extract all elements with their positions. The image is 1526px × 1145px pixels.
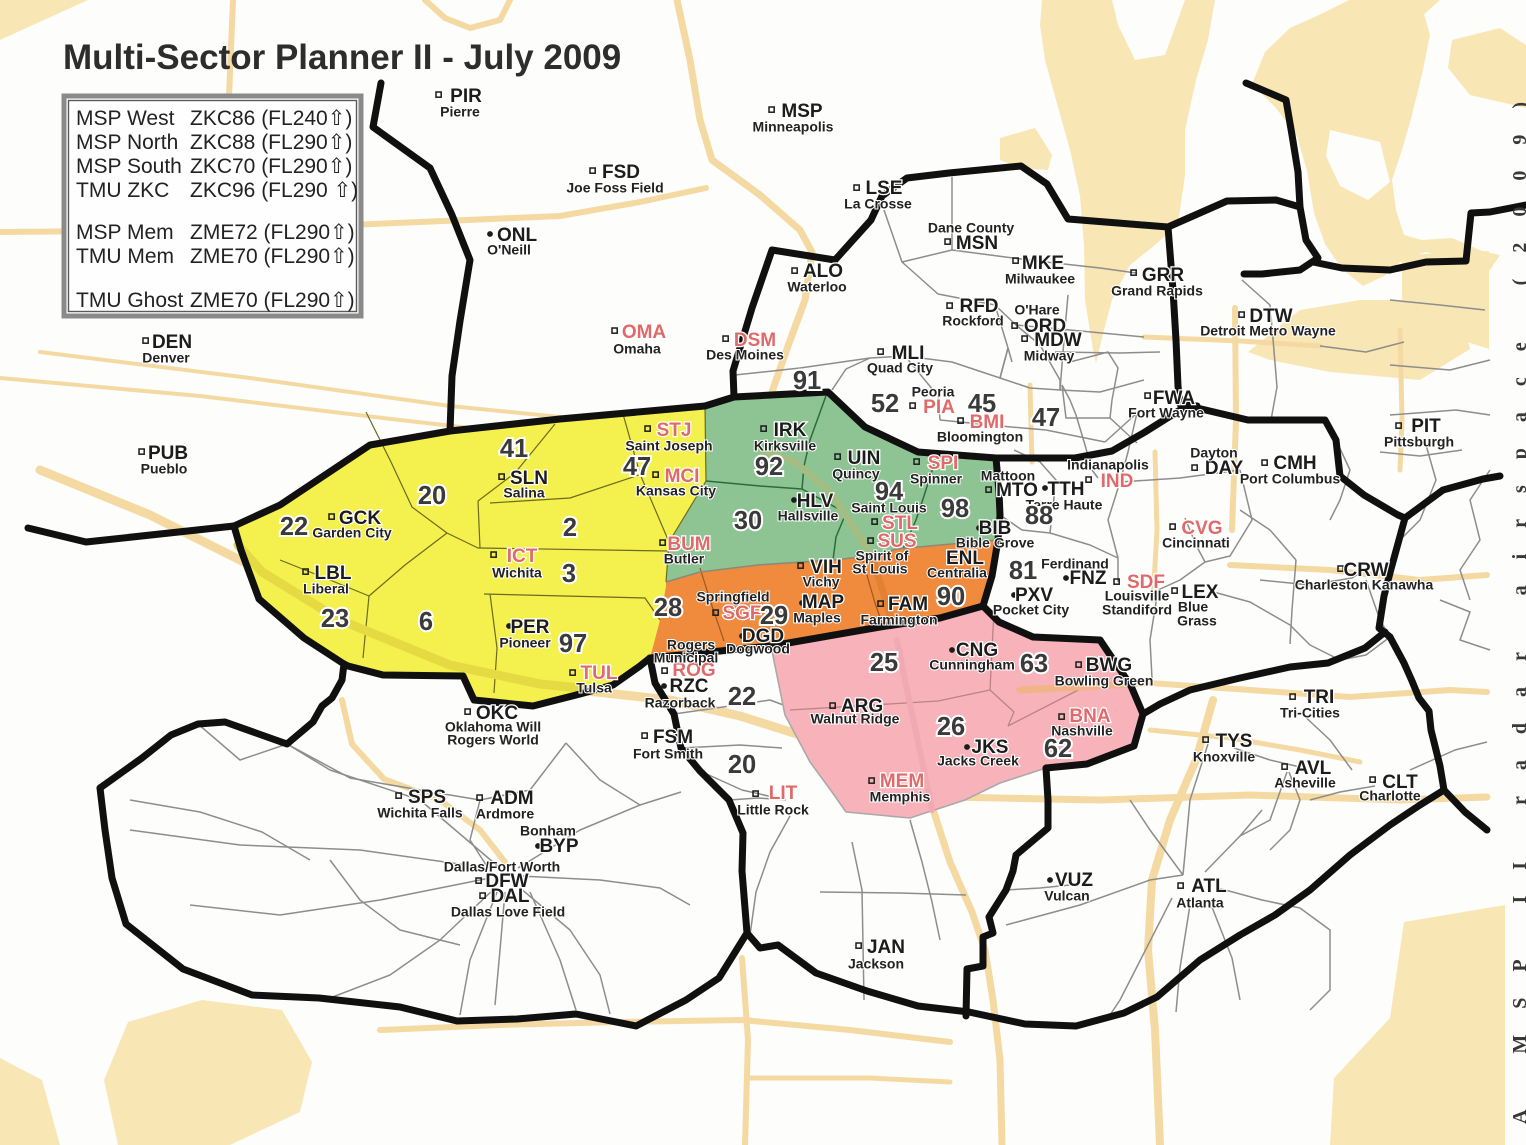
svg-text:Garden City: Garden City xyxy=(312,525,392,541)
svg-text:Saint Joseph: Saint Joseph xyxy=(625,438,712,454)
svg-text:88: 88 xyxy=(1025,502,1053,530)
svg-text:Farmington: Farmington xyxy=(861,612,938,628)
svg-text:Fort Smith: Fort Smith xyxy=(633,746,703,762)
svg-text:20: 20 xyxy=(418,482,446,510)
svg-text:Bowling Green: Bowling Green xyxy=(1055,673,1154,689)
svg-text:IND: IND xyxy=(1101,471,1134,492)
svg-text:Tri-Cities: Tri-Cities xyxy=(1280,705,1340,721)
svg-text:Grand Rapids: Grand Rapids xyxy=(1111,283,1203,299)
svg-text:ZKC96 (FL290 ⇧): ZKC96 (FL290 ⇧) xyxy=(190,179,358,202)
svg-text:Des Moines: Des Moines xyxy=(706,347,784,363)
svg-text:97: 97 xyxy=(559,630,587,658)
svg-text:Bible Grove: Bible Grove xyxy=(956,535,1035,551)
svg-text:Springfield: Springfield xyxy=(696,589,769,605)
svg-text:Butler: Butler xyxy=(664,551,705,567)
svg-text:Cunningham: Cunningham xyxy=(929,657,1015,673)
svg-text:BYP: BYP xyxy=(539,836,578,857)
svg-text:Kirksville: Kirksville xyxy=(754,438,816,454)
svg-text:91: 91 xyxy=(793,367,821,395)
svg-text:Wichita Falls: Wichita Falls xyxy=(377,805,463,821)
svg-text:Vichy: Vichy xyxy=(802,574,839,590)
svg-text:26: 26 xyxy=(937,713,965,741)
svg-text:Municipal: Municipal xyxy=(654,650,719,666)
svg-text:O'Neill: O'Neill xyxy=(487,242,531,258)
svg-text:Maples: Maples xyxy=(793,610,841,626)
svg-text:MSP North: MSP North xyxy=(76,131,178,154)
svg-text:62: 62 xyxy=(1044,735,1072,763)
svg-text:Razorback: Razorback xyxy=(645,695,716,711)
svg-text:Salina: Salina xyxy=(503,485,544,501)
svg-text:Tulsa: Tulsa xyxy=(576,680,612,696)
svg-text:Atlanta: Atlanta xyxy=(1176,895,1224,911)
svg-text:Fort Wayne: Fort Wayne xyxy=(1128,405,1204,421)
svg-text:90: 90 xyxy=(937,583,965,611)
svg-text:Pocket City: Pocket City xyxy=(993,602,1069,618)
svg-text:TMU Mem: TMU Mem xyxy=(76,245,174,268)
svg-text:Cincinnati: Cincinnati xyxy=(1162,535,1230,551)
svg-text:DAY: DAY xyxy=(1205,458,1244,479)
svg-text:Liberal: Liberal xyxy=(303,581,349,597)
svg-text:Rogers World: Rogers World xyxy=(447,732,539,748)
svg-text:Pittsburgh: Pittsburgh xyxy=(1384,434,1454,450)
svg-text:Ardmore: Ardmore xyxy=(476,806,535,822)
svg-text:MSP West: MSP West xyxy=(76,107,175,130)
svg-text:20: 20 xyxy=(728,751,756,779)
svg-text:MSP South: MSP South xyxy=(76,155,182,178)
svg-text:Bloomington: Bloomington xyxy=(937,429,1023,445)
svg-text:98: 98 xyxy=(941,495,969,523)
svg-text:St Louis: St Louis xyxy=(852,561,907,577)
svg-text:22: 22 xyxy=(280,513,308,541)
svg-text:ZKC88 (FL290⇧): ZKC88 (FL290⇧) xyxy=(190,131,352,154)
svg-text:ZME70 (FL290⇧): ZME70 (FL290⇧) xyxy=(190,245,355,268)
svg-text:Ferdinand: Ferdinand xyxy=(1041,556,1109,572)
svg-text:Omaha: Omaha xyxy=(613,341,661,357)
svg-text:ZME70 (FL290⇧): ZME70 (FL290⇧) xyxy=(190,289,355,312)
svg-text:25: 25 xyxy=(870,649,898,677)
svg-text:Indianapolis: Indianapolis xyxy=(1067,457,1149,473)
svg-text:Asheville: Asheville xyxy=(1274,775,1336,791)
svg-text:Denver: Denver xyxy=(142,350,190,366)
svg-text:Detroit Metro Wayne: Detroit Metro Wayne xyxy=(1200,323,1336,339)
svg-text:Standiford: Standiford xyxy=(1102,602,1172,618)
svg-text:52: 52 xyxy=(871,390,899,418)
svg-text:Little Rock: Little Rock xyxy=(737,802,809,818)
svg-text:TMU ZKC: TMU ZKC xyxy=(76,179,169,202)
svg-text:Waterloo: Waterloo xyxy=(787,279,846,295)
svg-text:Midway: Midway xyxy=(1024,348,1075,364)
svg-text:Milwaukee: Milwaukee xyxy=(1005,271,1075,287)
svg-text:Dogwood: Dogwood xyxy=(726,641,790,657)
svg-text:30: 30 xyxy=(734,507,762,535)
svg-text:Charleston Kanawha: Charleston Kanawha xyxy=(1295,577,1434,593)
svg-text:Quincy: Quincy xyxy=(832,466,880,482)
svg-text:Dayton: Dayton xyxy=(1190,445,1237,461)
svg-text:Peoria: Peoria xyxy=(912,384,955,400)
svg-text:Jackson: Jackson xyxy=(848,956,904,972)
svg-text:47: 47 xyxy=(623,453,651,481)
svg-text:SGF: SGF xyxy=(722,603,761,624)
svg-text:Multi-Sector Planner II - July: Multi-Sector Planner II - July 2009 xyxy=(63,38,621,77)
svg-text:Wichita: Wichita xyxy=(492,565,542,581)
svg-text:Rockford: Rockford xyxy=(942,313,1003,329)
svg-text:Kansas City: Kansas City xyxy=(636,483,716,499)
svg-text:Memphis: Memphis xyxy=(870,789,931,805)
svg-text:29: 29 xyxy=(760,602,788,630)
svg-text:ZKC70 (FL290⇧): ZKC70 (FL290⇧) xyxy=(190,155,352,178)
svg-text:Centralia: Centralia xyxy=(927,565,987,581)
svg-text:Spinner: Spinner xyxy=(910,471,963,487)
svg-text:23: 23 xyxy=(321,605,349,633)
svg-text:ZME72 (FL290⇧): ZME72 (FL290⇧) xyxy=(190,221,355,244)
svg-text:2: 2 xyxy=(563,514,577,542)
svg-text:Pueblo: Pueblo xyxy=(141,461,188,477)
svg-text:O'Hare: O'Hare xyxy=(1014,302,1060,318)
svg-text:La Crosse: La Crosse xyxy=(844,196,912,212)
svg-text:22: 22 xyxy=(728,683,756,711)
svg-text:Minneapolis: Minneapolis xyxy=(753,119,834,135)
svg-text:Vulcan: Vulcan xyxy=(1044,888,1089,904)
svg-text:Mattoon: Mattoon xyxy=(981,468,1035,484)
svg-text:45: 45 xyxy=(968,390,996,418)
svg-text:81: 81 xyxy=(1009,557,1037,585)
svg-text:MSP Mem: MSP Mem xyxy=(76,221,174,244)
svg-text:Port Columbus: Port Columbus xyxy=(1240,471,1341,487)
svg-text:Knoxville: Knoxville xyxy=(1193,749,1255,765)
svg-text:PIA: PIA xyxy=(923,397,955,418)
svg-text:Grass: Grass xyxy=(1177,613,1217,629)
svg-text:Charlotte: Charlotte xyxy=(1359,788,1421,804)
svg-text:Walnut Ridge: Walnut Ridge xyxy=(811,711,900,727)
svg-text:Joe Foss Field: Joe Foss Field xyxy=(566,180,663,196)
svg-text:94: 94 xyxy=(875,478,904,506)
svg-text:41: 41 xyxy=(500,435,528,463)
svg-text:Dane County: Dane County xyxy=(928,220,1015,236)
svg-text:Hallsville: Hallsville xyxy=(778,508,839,524)
svg-text:ZKC86 (FL240⇧): ZKC86 (FL240⇧) xyxy=(190,107,352,130)
svg-text:Quad City: Quad City xyxy=(867,360,933,376)
svg-text:6: 6 xyxy=(419,608,433,636)
svg-text:Bonham: Bonham xyxy=(520,823,576,839)
svg-text:A MSP II radar airspace (2009): A MSP II radar airspace (2009) xyxy=(1509,76,1526,1124)
svg-text:92: 92 xyxy=(755,453,783,481)
svg-text:28: 28 xyxy=(654,594,682,622)
svg-text:TMU Ghost: TMU Ghost xyxy=(76,289,184,312)
svg-text:Dallas Love Field: Dallas Love Field xyxy=(451,904,565,920)
svg-text:Pierre: Pierre xyxy=(440,104,480,120)
svg-text:3: 3 xyxy=(562,560,576,588)
svg-text:47: 47 xyxy=(1032,404,1060,432)
svg-text:Pioneer: Pioneer xyxy=(499,635,551,651)
svg-text:Jacks Creek: Jacks Creek xyxy=(937,753,1019,769)
svg-text:63: 63 xyxy=(1020,650,1048,678)
svg-text:MSN: MSN xyxy=(956,233,998,254)
svg-text:Dallas/Fort Worth: Dallas/Fort Worth xyxy=(444,859,560,875)
